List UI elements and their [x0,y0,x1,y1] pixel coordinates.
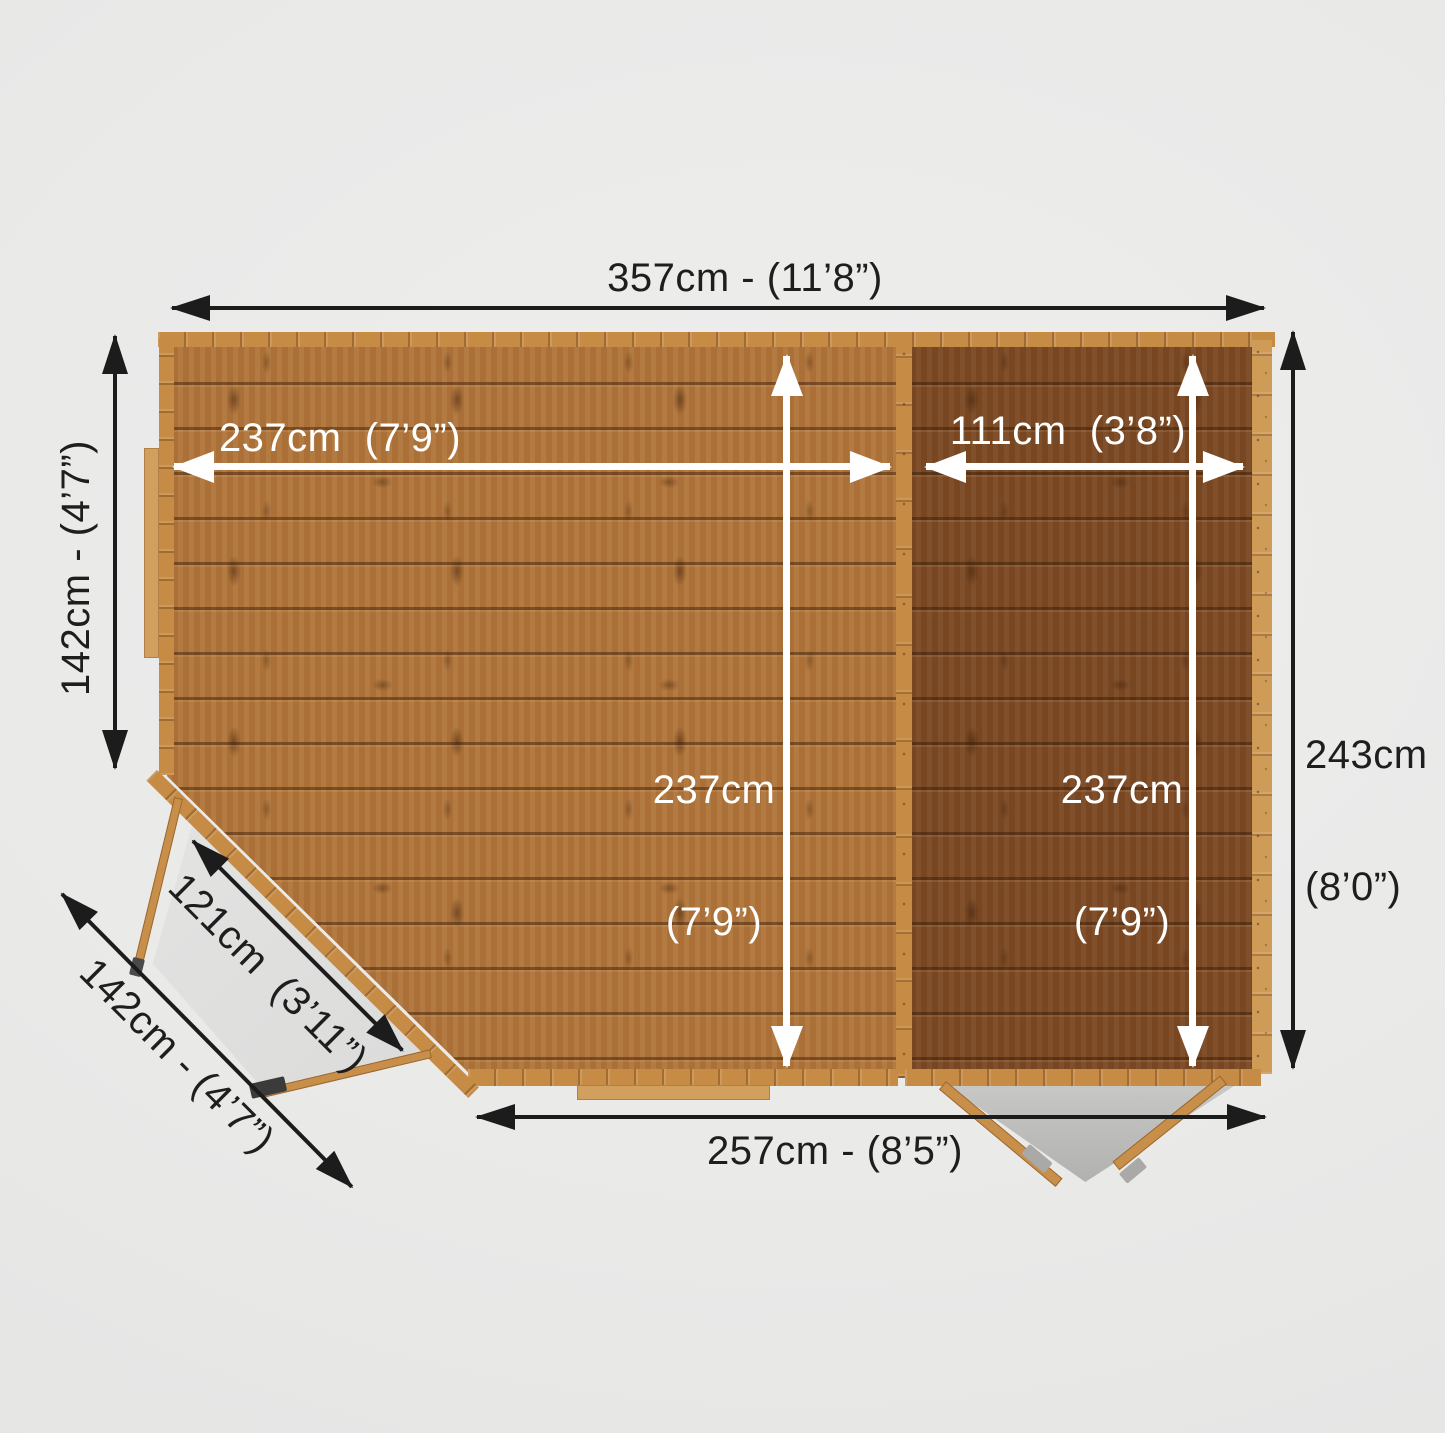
dim-arrow-overall-width [172,306,1264,310]
dim-label-side-depth: 237cm (7’9”) [1061,680,1184,1032]
dim-arrow-left-depth [113,336,117,768]
bottom-wall-main [468,1069,898,1086]
divider-wall [896,340,912,1076]
dim-label-main-depth: 237cm (7’9”) [653,680,776,1032]
dim-label-main-width: 237cm (7’9”) [219,416,461,460]
dim-label-side-width: 111cm (3’8”) [950,409,1186,453]
dim-label-overall-depth: 243cm (8’0”) [1305,645,1428,997]
dim-label-overall-width: 357cm - (11’8”) [607,256,883,300]
dim-arrow-main-depth [783,356,790,1066]
left-window [144,448,159,658]
dim-label-left-depth: 142cm - (4’7”) [54,440,98,696]
right-wall [1252,340,1272,1074]
bottom-wall-side [905,1069,1261,1086]
left-wall [159,338,174,775]
top-wall [158,332,1275,347]
dim-arrow-bottom-width [477,1115,1265,1119]
floor-plan-diagram: 357cm - (11’8”) 142cm - (4’7”) 237cm (7’… [0,0,1445,1433]
dim-arrow-overall-depth [1291,332,1295,1068]
dim-label-bottom-width: 257cm - (8’5”) [707,1129,963,1173]
bottom-window [577,1085,770,1100]
dim-arrow-side-depth [1189,356,1196,1066]
